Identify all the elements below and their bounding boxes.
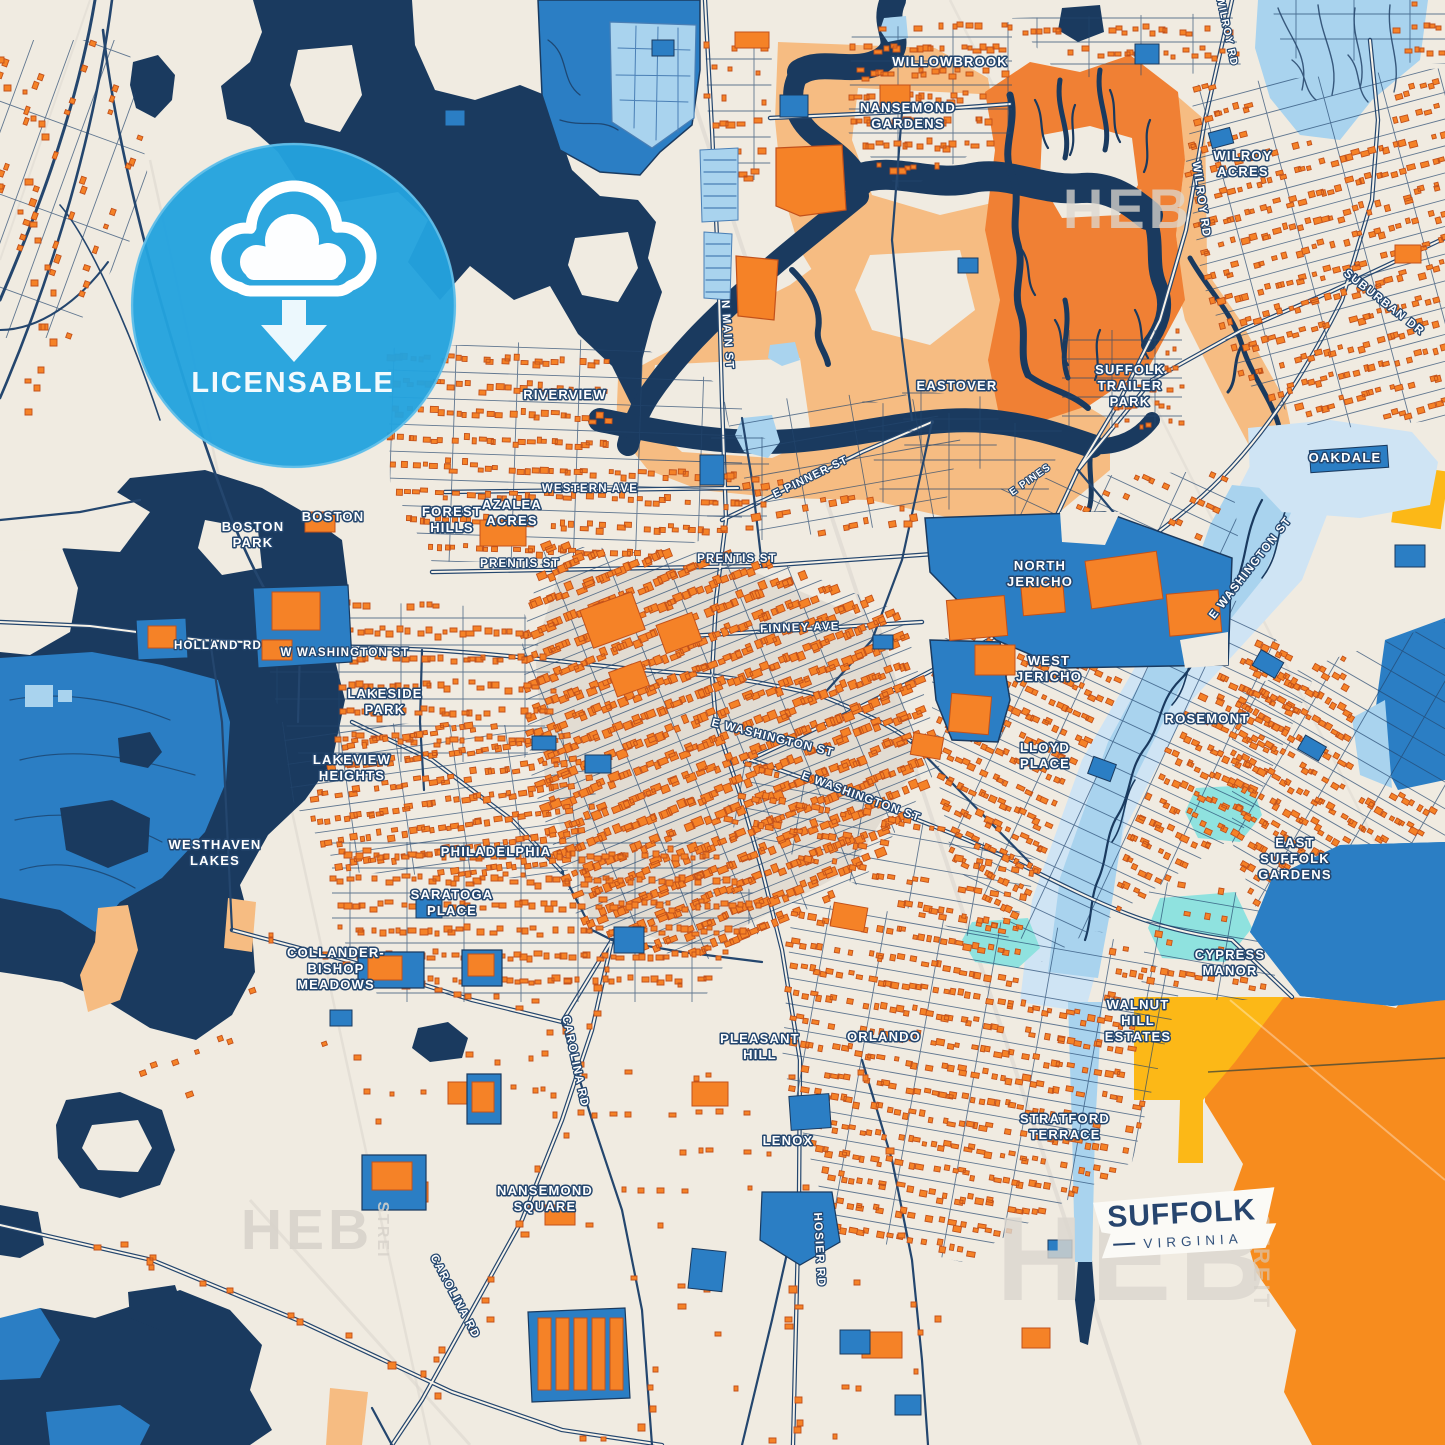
- svg-text:WALNUT: WALNUT: [1107, 997, 1170, 1012]
- svg-text:ACRES: ACRES: [1217, 164, 1269, 179]
- svg-text:BISHOP: BISHOP: [307, 961, 364, 976]
- svg-text:WEST: WEST: [1028, 653, 1070, 668]
- svg-text:LENOX: LENOX: [763, 1133, 814, 1148]
- svg-text:WESTHAVEN: WESTHAVEN: [169, 837, 262, 852]
- svg-text:STRATFORD: STRATFORD: [1020, 1111, 1110, 1126]
- svg-text:HILL: HILL: [743, 1047, 777, 1062]
- svg-text:PLACE: PLACE: [1020, 756, 1070, 771]
- svg-text:BOSTON: BOSTON: [302, 509, 365, 524]
- svg-text:RIVERVIEW: RIVERVIEW: [523, 387, 607, 402]
- svg-text:MEADOWS: MEADOWS: [297, 977, 375, 992]
- svg-text:LAKES: LAKES: [190, 853, 240, 868]
- svg-text:HEIGHTS: HEIGHTS: [319, 768, 385, 783]
- svg-text:FOREST: FOREST: [422, 504, 482, 519]
- svg-text:LLOYD: LLOYD: [1020, 740, 1070, 755]
- svg-text:CYPRESS: CYPRESS: [1195, 947, 1266, 962]
- svg-text:WILLOWBROOK: WILLOWBROOK: [892, 54, 1008, 69]
- svg-text:PARK: PARK: [1110, 394, 1151, 409]
- svg-text:PHILADELPHIA: PHILADELPHIA: [441, 844, 551, 859]
- svg-text:SARATOGA: SARATOGA: [411, 887, 494, 902]
- svg-text:LAKESIDE: LAKESIDE: [347, 686, 422, 701]
- svg-text:EAST: EAST: [1275, 835, 1314, 850]
- svg-text:LICENSABLE: LICENSABLE: [191, 367, 394, 399]
- svg-text:JERICHO: JERICHO: [1016, 669, 1082, 684]
- svg-text:EASTOVER: EASTOVER: [917, 378, 998, 393]
- svg-text:HILLS: HILLS: [430, 520, 474, 535]
- svg-text:LAKEVIEW: LAKEVIEW: [313, 752, 391, 767]
- svg-text:W WASHINGTON ST: W WASHINGTON ST: [281, 647, 410, 659]
- svg-text:ROSEMONT: ROSEMONT: [1165, 711, 1250, 726]
- svg-text:JERICHO: JERICHO: [1007, 574, 1073, 589]
- svg-text:GARDENS: GARDENS: [871, 116, 944, 131]
- svg-text:PLEASANT: PLEASANT: [720, 1031, 800, 1046]
- svg-text:PRENTIS ST: PRENTIS ST: [480, 558, 560, 570]
- svg-text:AZALEA: AZALEA: [482, 497, 542, 512]
- svg-text:TRAILER: TRAILER: [1098, 378, 1163, 393]
- svg-text:WILROY: WILROY: [1213, 148, 1272, 163]
- svg-text:COLLANDER-: COLLANDER-: [287, 945, 385, 960]
- svg-text:NORTH: NORTH: [1014, 558, 1066, 573]
- svg-text:PARK: PARK: [365, 702, 406, 717]
- svg-text:MANOR: MANOR: [1202, 963, 1257, 978]
- svg-text:NANSEMOND: NANSEMOND: [860, 100, 956, 115]
- svg-text:WESTERN AVE: WESTERN AVE: [542, 483, 638, 495]
- svg-text:PLACE: PLACE: [427, 903, 477, 918]
- svg-text:HILL: HILL: [1121, 1013, 1155, 1028]
- svg-text:HOLLAND RD: HOLLAND RD: [174, 640, 262, 652]
- svg-text:PARK: PARK: [233, 535, 274, 550]
- svg-text:PRENTIS ST: PRENTIS ST: [697, 553, 777, 565]
- svg-text:ACRES: ACRES: [486, 513, 538, 528]
- svg-text:STREI: STREI: [374, 1201, 391, 1258]
- svg-text:HEB: HEB: [241, 1198, 373, 1262]
- svg-text:SUFFOLK: SUFFOLK: [1095, 362, 1165, 377]
- svg-text:OAKDALE: OAKDALE: [1309, 450, 1382, 465]
- svg-text:TERRACE: TERRACE: [1029, 1127, 1100, 1142]
- svg-text:BOSTON: BOSTON: [222, 519, 285, 534]
- svg-text:SQUARE: SQUARE: [514, 1199, 577, 1214]
- svg-text:SUFFOLK: SUFFOLK: [1260, 851, 1330, 866]
- svg-text:ESTATES: ESTATES: [1105, 1029, 1171, 1044]
- svg-text:HEB: HEB: [1063, 177, 1193, 240]
- svg-text:NANSEMOND: NANSEMOND: [497, 1183, 593, 1198]
- svg-text:GARDENS: GARDENS: [1258, 867, 1331, 882]
- svg-text:ORLANDO: ORLANDO: [847, 1029, 921, 1044]
